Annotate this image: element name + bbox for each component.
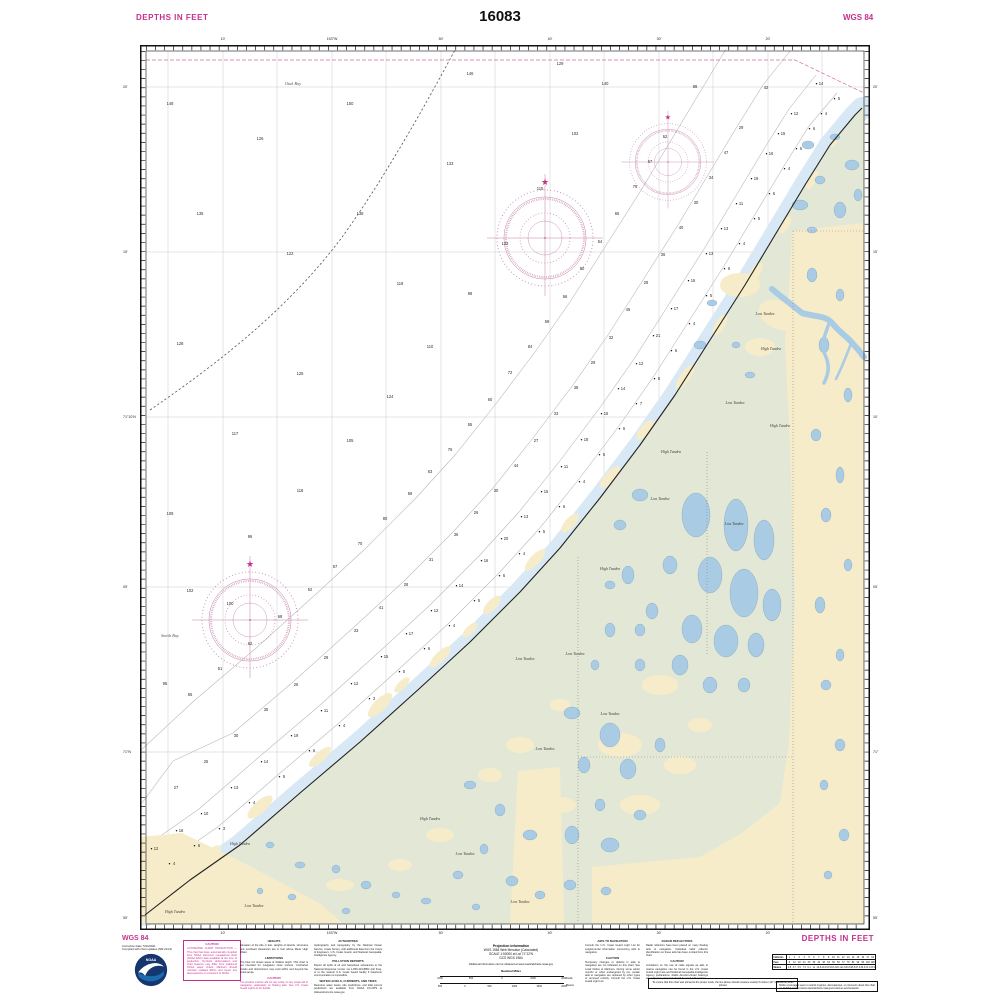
- sounding: 5: [658, 376, 661, 381]
- graticule-label: 10': [221, 37, 226, 41]
- sounding: 5: [838, 96, 841, 101]
- lake: [763, 589, 781, 621]
- graticule-label: 55': [873, 916, 878, 920]
- tundra-label: Low Tundra: [650, 497, 670, 501]
- lake: [605, 623, 615, 637]
- sand-patch: [506, 737, 534, 753]
- sounding: 42: [764, 85, 769, 90]
- lake: [792, 200, 808, 210]
- sand-patch: [184, 865, 236, 897]
- note-block: LIMITATIONSThe blue tint shows areas of …: [240, 957, 308, 974]
- conversion-row: Fathoms123456789101112131415161718: [773, 955, 875, 959]
- graticule-label: 50': [439, 37, 444, 41]
- sounding: 15: [781, 131, 786, 136]
- lake: [730, 569, 758, 617]
- conversion-row-label: Feet: [773, 960, 787, 964]
- tundra-label: High Tundra: [229, 842, 250, 846]
- lake: [257, 888, 263, 894]
- note-header: AUTHORITIES: [314, 940, 382, 943]
- note-column: CAUTIONAUTOMATED CHART PRODUCTION — This…: [183, 940, 241, 981]
- sounding-dot: [231, 787, 232, 788]
- sounding-dot: [654, 378, 655, 379]
- scale-bar-title: Nautical Miles: [440, 969, 582, 973]
- sounding: 108: [167, 511, 175, 516]
- note-block: AUTHORITIESHydrography and topography by…: [314, 940, 382, 957]
- scale-bar-tick: 1000: [512, 985, 518, 988]
- sounding-dot: [724, 268, 725, 269]
- chart-limit-line: [146, 60, 864, 93]
- sounding: 33: [554, 411, 559, 416]
- sounding: 78: [633, 184, 638, 189]
- sounding: 31: [429, 557, 434, 562]
- graticule-label: 40': [548, 931, 553, 935]
- datum-label-bottom-left: WGS 84: [122, 935, 148, 942]
- sounding-dot: [501, 538, 502, 539]
- sounding: 55: [468, 422, 473, 427]
- sounding-dot: [796, 148, 797, 149]
- sounding: 29: [591, 360, 596, 365]
- lake: [622, 566, 634, 584]
- lake: [748, 633, 764, 657]
- sounding-dot: [339, 725, 340, 726]
- sounding: 15: [604, 411, 609, 416]
- lake: [836, 649, 844, 661]
- sounding-dot: [601, 413, 602, 414]
- sounding: 140: [602, 81, 610, 86]
- sounding: 4: [693, 321, 696, 326]
- sounding-dot: [399, 671, 400, 672]
- sounding-dot: [671, 350, 672, 351]
- sounding: 12: [154, 846, 159, 851]
- sounding: 135: [197, 211, 205, 216]
- depths-in-feet-label-bottom: DEPTHS IN FEET: [770, 934, 874, 943]
- nautical-chart-canvas: ★: [140, 45, 870, 930]
- sounding-dot: [671, 308, 672, 309]
- sounding: 17: [674, 306, 679, 311]
- note-block: RADAR REFLECTORSRadar reflectors have be…: [646, 940, 708, 957]
- sounding: 102: [187, 588, 195, 593]
- sounding: 28: [644, 280, 649, 285]
- sounding: 132: [502, 241, 510, 246]
- bay-label: Otuk Bay: [285, 81, 302, 86]
- note-header: CAUTION: [646, 960, 708, 963]
- sounding-dot: [816, 83, 817, 84]
- sounding: 18: [179, 828, 184, 833]
- conversion-value: 18: [870, 955, 875, 959]
- sounding: 88: [693, 84, 698, 89]
- sounding: 45: [626, 307, 631, 312]
- lake: [802, 141, 814, 149]
- sounding-dot: [769, 193, 770, 194]
- graticule-label: 30': [657, 931, 662, 935]
- scale-bar-tick: 2000: [561, 985, 567, 988]
- lake: [646, 603, 658, 619]
- scale-bar-tick: 1500: [536, 985, 542, 988]
- dashed-danger-line: [150, 50, 455, 410]
- sounding-dot: [821, 113, 822, 114]
- sounding-dot: [424, 648, 425, 649]
- note-body: Consult the U.S. Coast Guard Light List …: [585, 944, 640, 953]
- sounding: 68: [278, 614, 283, 619]
- correction-line2: Compiled with chart updates (NM 21/21): [122, 948, 172, 951]
- sounding: 30: [234, 733, 239, 738]
- sounding-dot: [194, 845, 195, 846]
- sounding-dot: [689, 323, 690, 324]
- sounding-dot: [636, 403, 637, 404]
- sounding-dot: [561, 466, 562, 467]
- sounding: 146: [467, 71, 475, 76]
- sounding-dot: [431, 610, 432, 611]
- sand-patch: [326, 879, 354, 891]
- sounding-dot: [449, 625, 450, 626]
- note-header: CAUTION: [187, 943, 237, 946]
- sounding: 126: [257, 136, 265, 141]
- datum-label-top-right: WGS 84: [843, 13, 873, 22]
- lake: [839, 829, 849, 841]
- tundra-label: Low Tundra: [600, 712, 620, 716]
- sounding: 6: [623, 426, 626, 431]
- note-body: The blue tint shows areas of shallow dep…: [240, 961, 308, 973]
- sounding-dot: [834, 98, 835, 99]
- sounding: 148: [167, 101, 175, 106]
- lake: [506, 876, 518, 886]
- sounding: 60: [488, 397, 493, 402]
- lake: [836, 467, 844, 483]
- noaa-logo: NOAA: [134, 953, 168, 987]
- lake: [807, 227, 817, 233]
- lake: [635, 659, 645, 671]
- sounding: 14: [621, 386, 626, 391]
- scale-bar-tick: 0: [464, 985, 465, 988]
- sounding-dot: [636, 363, 637, 364]
- tundra-label: High Tundra: [599, 567, 620, 571]
- sounding: 125: [297, 371, 305, 376]
- sounding: 13: [234, 785, 239, 790]
- lake: [732, 342, 740, 348]
- sounding: 58: [408, 491, 413, 496]
- sounding: 122: [287, 251, 295, 256]
- sounding: 13: [724, 226, 729, 231]
- compass-rose-northeast: [622, 111, 715, 209]
- lake: [332, 865, 340, 873]
- note-body: Real-time water levels, tide predictions…: [314, 984, 382, 993]
- sounding-dot: [406, 633, 407, 634]
- sounding: 66: [563, 294, 568, 299]
- sounding: 65: [615, 211, 620, 216]
- lake: [835, 739, 845, 751]
- lake: [361, 881, 371, 889]
- lake: [472, 904, 480, 910]
- graticule-label: 71°: [873, 750, 878, 754]
- additional-info-line: Additional information can be obtained a…: [440, 963, 582, 966]
- sounding: 6: [428, 646, 431, 651]
- graticule-label: 30': [657, 37, 662, 41]
- sounding: 14: [264, 759, 269, 764]
- sounding-dot: [739, 243, 740, 244]
- sounding-dot: [736, 203, 737, 204]
- note-header: HEIGHTS: [240, 940, 308, 943]
- lake: [595, 799, 605, 811]
- lake: [807, 268, 817, 282]
- sounding: 6: [503, 573, 506, 578]
- tundra-label: High Tundra: [164, 910, 185, 914]
- tundra-label: Low Tundra: [515, 657, 535, 661]
- sounding: 27: [534, 438, 539, 443]
- depth-conversion-table: Fathoms123456789101112131415161718Feet61…: [772, 954, 876, 970]
- sounding: 51: [218, 666, 223, 671]
- sounding: 124: [387, 394, 395, 399]
- conversion-value: 108: [870, 960, 875, 964]
- note-block: AIDS TO NAVIGATIONConsult the U.S. Coast…: [585, 940, 640, 954]
- sounding: 10: [204, 811, 209, 816]
- tundra-label: Low Tundra: [724, 522, 744, 526]
- sounding: 47: [724, 150, 729, 155]
- graticule-label: 153°W: [327, 931, 338, 935]
- sounding: 119: [397, 281, 404, 286]
- tundra-label: Low Tundra: [565, 652, 585, 656]
- scale-bar-tick: 500: [488, 985, 492, 988]
- sounding: 128: [177, 341, 185, 346]
- sounding-dot: [321, 710, 322, 711]
- projection-block: Projection information WGS 1984 Web Merc…: [440, 944, 582, 988]
- sounding-dot: [261, 761, 262, 762]
- sounding-dot: [706, 253, 707, 254]
- sounding: 11: [564, 464, 569, 469]
- lake: [820, 780, 828, 790]
- sounding: 16: [691, 278, 696, 283]
- tundra-label: High Tundra: [769, 424, 790, 428]
- scale-bar-row: 5000500100015002000Meters: [440, 983, 582, 988]
- note-header: RADAR REFLECTORS: [646, 940, 708, 943]
- sounding-dot: [279, 776, 280, 777]
- chart-sheet: DEPTHS IN FEET 16083 WGS 84 ★: [0, 0, 1000, 1000]
- lake: [605, 581, 615, 589]
- scale-bar-tick: 2000: [561, 977, 567, 980]
- sounding: 36: [661, 252, 666, 257]
- sounding: 5: [283, 774, 286, 779]
- sounding: 36: [454, 532, 459, 537]
- sounding-dot: [778, 133, 779, 134]
- sounding: 57: [648, 159, 653, 164]
- note-column: AIDS TO NAVIGATIONConsult the U.S. Coast…: [585, 940, 640, 986]
- sounding: 26: [474, 510, 479, 515]
- lake: [811, 429, 821, 441]
- sounding: 18: [584, 437, 589, 442]
- sounding: 4: [825, 111, 828, 116]
- note-header: WATER LEVELS, CURRENTS, AND TIDES: [314, 980, 382, 983]
- sounding: 30: [494, 488, 499, 493]
- scale-bars: Nautical Miles 1000500010002000Yards5000…: [440, 969, 582, 988]
- note-block: CAUTIONThe prudent mariner will not rely…: [240, 977, 308, 991]
- lake: [565, 826, 579, 844]
- sounding: 55: [188, 692, 193, 697]
- tundra-label: Low Tundra: [535, 747, 555, 751]
- conversion-row-label: Meters: [773, 965, 787, 969]
- note-header: LIMITATIONS: [240, 957, 308, 960]
- scale-bar-tick: 500: [469, 977, 473, 980]
- sounding: 41: [379, 605, 384, 610]
- sounding: 28: [404, 582, 409, 587]
- note-header: POLLUTION REPORTS: [314, 960, 382, 963]
- sounding: 27: [174, 785, 179, 790]
- sounding: 4: [523, 551, 526, 556]
- sounding: 118: [297, 488, 304, 493]
- lake: [682, 615, 702, 643]
- lake: [714, 625, 738, 657]
- sounding-dot: [499, 575, 500, 576]
- sand-patch: [688, 718, 712, 732]
- lake: [480, 844, 488, 854]
- sounding: 54: [598, 239, 603, 244]
- sounding-dot: [618, 388, 619, 389]
- sounding-dot: [201, 813, 202, 814]
- conversion-row-label: Fathoms: [773, 955, 787, 959]
- sounding: 62: [663, 134, 668, 139]
- sounding: 25: [204, 759, 209, 764]
- lake: [821, 680, 831, 690]
- lake: [703, 677, 717, 693]
- sounding: 90: [580, 266, 585, 271]
- graticule-label: 50': [439, 931, 444, 935]
- lake: [620, 759, 636, 779]
- sounding: 12: [639, 361, 644, 366]
- lake: [854, 189, 862, 201]
- sounding: 4: [453, 623, 456, 628]
- sounding: 16: [769, 151, 774, 156]
- tundra-label: High Tundra: [419, 817, 440, 821]
- sounding-dot: [721, 228, 722, 229]
- sounding-dot: [653, 335, 654, 336]
- lake: [707, 300, 717, 306]
- sounding: 11: [739, 201, 744, 206]
- lake: [672, 655, 688, 675]
- tundra-label: High Tundra: [760, 347, 781, 351]
- sounding: 14: [819, 81, 824, 86]
- sounding: 4: [743, 241, 746, 246]
- sounding: 14: [459, 583, 464, 588]
- sounding: 63: [428, 469, 433, 474]
- note-body: Report all spills of oil and hazardous s…: [314, 964, 382, 976]
- sounding: 98: [468, 291, 473, 296]
- lake: [836, 289, 844, 301]
- sounding: 4: [788, 166, 791, 171]
- lake: [844, 559, 852, 571]
- sand-patch: [388, 859, 412, 871]
- lake: [564, 707, 580, 719]
- scale-bar-tick: 0: [501, 977, 502, 980]
- graticule-label: 20': [123, 85, 128, 89]
- lake: [694, 341, 706, 349]
- graticule-label: 71°N: [123, 750, 131, 754]
- sounding: 72: [508, 370, 513, 375]
- svg-text:NOAA: NOAA: [146, 958, 157, 962]
- scale-bar-unit: Meters: [566, 984, 582, 987]
- lake: [266, 842, 274, 848]
- lake: [421, 898, 431, 904]
- sounding: 26: [294, 682, 299, 687]
- sounding: 13: [524, 514, 529, 519]
- graticule-label: 05': [873, 585, 878, 589]
- sounding-dot: [291, 735, 292, 736]
- graticule-label: 40': [548, 37, 553, 41]
- sounding-dot: [456, 585, 457, 586]
- sounding: 150: [347, 101, 355, 106]
- sounding: 29: [324, 655, 329, 660]
- note-block: CAUTIONTemporary changes or defects in a…: [585, 957, 640, 983]
- sounding-dot: [766, 153, 767, 154]
- sounding-dot: [219, 828, 220, 829]
- lake: [663, 556, 677, 574]
- sounding: 4: [343, 723, 346, 728]
- sounding: 16: [484, 558, 489, 563]
- lake: [844, 388, 852, 402]
- sounding-dot: [579, 481, 580, 482]
- note-column: HEIGHTSElevation of the tide in feet. He…: [240, 940, 308, 994]
- sounding-dot: [481, 560, 482, 561]
- conversion-row: Feet612182430364248546066727884909610210…: [773, 959, 875, 964]
- lake: [815, 176, 825, 184]
- lake: [342, 908, 350, 914]
- graticule-label: 10': [873, 415, 878, 419]
- sounding-dot: [541, 491, 542, 492]
- sounding-dot: [559, 506, 560, 507]
- scale-bar-tick: 1000: [530, 977, 536, 980]
- sounding: 13: [709, 251, 714, 256]
- sounding: 29: [739, 125, 744, 130]
- sounding: 84: [528, 344, 533, 349]
- sounding-dot: [176, 830, 177, 831]
- lake: [738, 678, 750, 692]
- graticule-label: 55': [123, 916, 128, 920]
- sounding: 129: [557, 61, 565, 66]
- sounding: 30: [694, 200, 699, 205]
- sounding-dot: [309, 750, 310, 751]
- chart-map-area: ★: [140, 45, 870, 930]
- note-header: CAUTION: [240, 977, 308, 980]
- tundra-label: Low Tundra: [510, 900, 530, 904]
- lake: [535, 891, 545, 899]
- sounding-dot: [754, 218, 755, 219]
- graticule-label: 10': [221, 931, 226, 935]
- sounding: 12: [434, 608, 439, 613]
- sounding: 5: [478, 598, 481, 603]
- sounding: 20: [504, 536, 509, 541]
- lake: [600, 723, 620, 747]
- sounding: 3: [373, 696, 376, 701]
- note-block: CAUTIONLimitations on the use of radio s…: [646, 960, 708, 980]
- sounding: 35: [264, 707, 269, 712]
- sounding: 95: [163, 681, 168, 686]
- lake: [745, 372, 755, 378]
- lake: [295, 862, 305, 868]
- sounding: 117: [232, 431, 239, 436]
- sounding: 80: [383, 516, 388, 521]
- lake: [821, 508, 831, 522]
- tundra-label: Low Tundra: [455, 852, 475, 856]
- graticule-label: 05': [123, 585, 128, 589]
- lake: [495, 804, 505, 816]
- note-column: AUTHORITIESHydrography and topography by…: [314, 940, 382, 997]
- scale-bar-tick: 1000: [437, 977, 443, 980]
- sounding-dot: [784, 168, 785, 169]
- sounding: 5: [710, 293, 713, 298]
- sounding-dot: [381, 656, 382, 657]
- lake: [591, 660, 599, 670]
- sounding: 52: [308, 587, 313, 592]
- sounding: 5: [403, 669, 406, 674]
- note-header: AIDS TO NAVIGATION: [585, 940, 640, 943]
- sounding: 12: [794, 111, 799, 116]
